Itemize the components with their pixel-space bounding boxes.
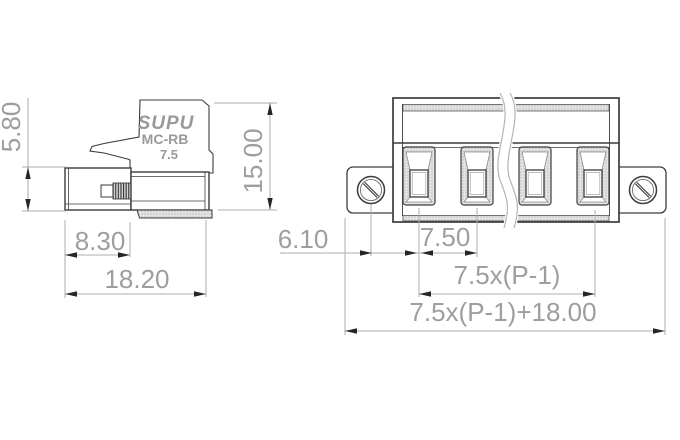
dimension-15-00: 15.00 [214, 103, 277, 210]
logo-pitch: 7.5 [160, 147, 178, 162]
dim-label-total-width: 7.5x(P-1)+18.00 [409, 297, 596, 327]
dim-label-6-10: 6.10 [278, 224, 329, 254]
screw-tip [101, 185, 113, 197]
terminal-opening-1 [403, 147, 435, 205]
dim-label-pole-span: 7.5x(P-1) [454, 260, 561, 290]
dim-label-18-20: 18.20 [104, 264, 169, 294]
flange-screw-right [630, 177, 657, 204]
front-view [347, 93, 666, 228]
drawing-canvas: SUPU MC-RB 7.5 [0, 0, 680, 440]
technical-drawing: SUPU MC-RB 7.5 [0, 0, 680, 440]
screw-thread [113, 183, 132, 199]
flange-screw-left [358, 177, 385, 204]
dim-label-15-00: 15.00 [238, 128, 268, 193]
socket-base-step [137, 210, 212, 218]
side-view: SUPU MC-RB 7.5 [65, 100, 213, 218]
dim-label-8-30: 8.30 [75, 226, 126, 256]
socket-housing [131, 172, 212, 218]
dim-label-7-50: 7.50 [420, 222, 471, 252]
terminal-opening-2 [461, 147, 493, 205]
terminal-opening-4 [577, 147, 609, 205]
dim-label-5-80: 5.80 [0, 102, 26, 153]
logo-series: MC-RB [142, 131, 189, 147]
terminal-opening-3 [519, 147, 551, 205]
dimension-5-80: 5.80 [0, 98, 66, 211]
